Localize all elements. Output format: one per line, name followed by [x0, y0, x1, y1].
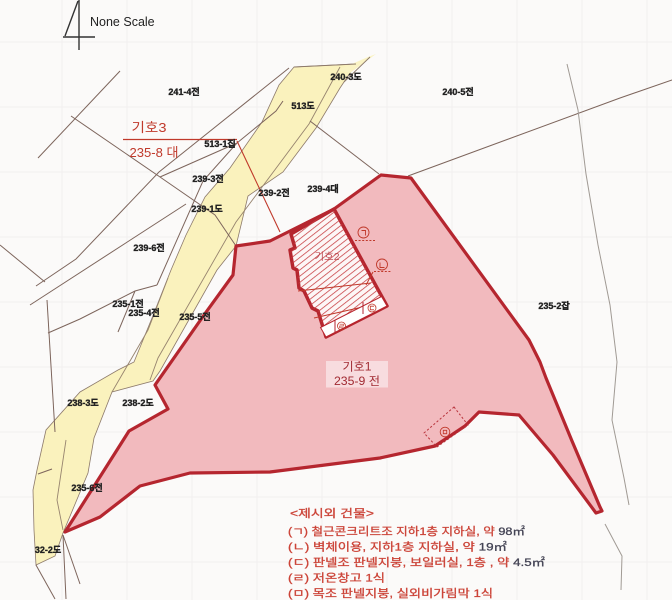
svg-text:238-3도: 238-3도 [67, 398, 99, 408]
svg-text:235-9 전: 235-9 전 [334, 375, 380, 388]
svg-text:(ㅁ) 목조 판넬지붕, 실외비가림막 1식: (ㅁ) 목조 판넬지붕, 실외비가림막 1식 [288, 587, 493, 600]
svg-text:238-2도: 238-2도 [122, 398, 154, 408]
svg-text:기호3: 기호3 [132, 120, 167, 135]
svg-text:239-3전: 239-3전 [192, 173, 223, 184]
svg-text:235-2잡: 235-2잡 [538, 300, 570, 311]
svg-text:240-3도: 240-3도 [330, 72, 362, 82]
svg-text:239-6전: 239-6전 [133, 242, 164, 253]
svg-text:None Scale: None Scale [90, 15, 155, 29]
svg-text:239-1도: 239-1도 [191, 204, 223, 214]
svg-text:(ㄷ) 판넬조 판넬지붕, 보일러실, 1층 , 약 4.5: (ㄷ) 판넬조 판넬지붕, 보일러실, 1층 , 약 4.5㎡ [288, 555, 545, 569]
svg-text:기호1: 기호1 [343, 361, 372, 374]
svg-text:<제시외 건물>: <제시외 건물> [290, 507, 374, 520]
svg-text:(ㄹ) 저온창고 1식: (ㄹ) 저온창고 1식 [288, 572, 385, 585]
svg-text:240-5전: 240-5전 [442, 86, 473, 97]
svg-text:235-5전: 235-5전 [179, 311, 210, 322]
svg-text:239-4대: 239-4대 [307, 183, 338, 194]
svg-text:513-1집: 513-1집 [204, 138, 235, 149]
svg-text:513도: 513도 [291, 101, 315, 111]
svg-text:32-2도: 32-2도 [35, 545, 62, 555]
svg-text:241-4전: 241-4전 [168, 86, 199, 97]
svg-text:235-8 대: 235-8 대 [130, 145, 179, 160]
svg-text:239-2전: 239-2전 [258, 187, 289, 198]
svg-text:기호2: 기호2 [315, 251, 340, 263]
svg-text:235-6전: 235-6전 [71, 482, 102, 493]
svg-text:235-4전: 235-4전 [128, 307, 159, 318]
svg-text:(ㄱ) 철근콘크리트조 지하1층 지하실, 약 98㎡: (ㄱ) 철근콘크리트조 지하1층 지하실, 약 98㎡ [288, 524, 525, 538]
svg-text:(ㄴ) 벽체이용, 지하1층 지하실, 약 19㎡: (ㄴ) 벽체이용, 지하1층 지하실, 약 19㎡ [288, 540, 507, 554]
